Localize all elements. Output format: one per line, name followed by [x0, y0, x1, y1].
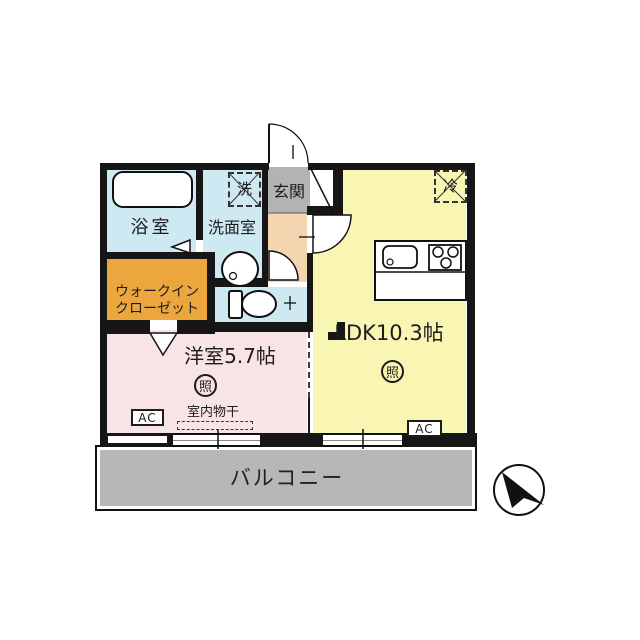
indoor-drying-rail — [177, 421, 253, 430]
washbasin-drain — [230, 273, 237, 280]
walk-in-closet-label-line2: クローゼット — [107, 301, 207, 318]
western-room-light-symbol: 照 — [194, 374, 217, 397]
bathtub — [113, 172, 192, 207]
ldk-light-symbol: 照 — [381, 360, 404, 383]
balcony-label: バルコニー — [187, 465, 387, 491]
western-room-ac-box: AC — [131, 409, 164, 426]
shoe-cabinet-line — [310, 167, 333, 213]
ldk-ac-box: AC — [407, 420, 442, 437]
toilet-bowl — [242, 291, 276, 317]
western-room-label: 洋室5.7帖 — [130, 344, 330, 368]
washbasin — [222, 252, 258, 286]
washer-label: 洗 — [228, 180, 261, 200]
bathroom-door-icon — [172, 240, 190, 253]
floor-plan: 浴室 洗面室 洗 玄関 冷 ウォークイン クローゼット 洋室5.7帖 照 AC … — [0, 0, 640, 640]
walk-in-closet-label-line1: ウォークイン — [107, 284, 207, 301]
entrance-door-arc — [269, 124, 308, 163]
stove-burner — [448, 247, 458, 257]
fridge-label: 冷 — [434, 177, 467, 197]
washroom-label: 洗面室 — [200, 218, 264, 238]
indoor-drying-label: 室内物干 — [168, 405, 258, 421]
ldk-door — [313, 215, 351, 253]
ldk-label: LDK10.3帖 — [314, 321, 464, 345]
kitchen-sink-drain — [387, 259, 393, 265]
stove-burner — [433, 247, 443, 257]
bathroom-label: 浴室 — [107, 217, 196, 239]
toilet-door — [269, 251, 298, 280]
north-arrow-icon — [494, 465, 544, 515]
toilet-tank — [229, 291, 242, 318]
entrance-label: 玄関 — [266, 182, 312, 202]
stove-burner — [441, 258, 451, 268]
fixtures-layer — [0, 0, 640, 640]
